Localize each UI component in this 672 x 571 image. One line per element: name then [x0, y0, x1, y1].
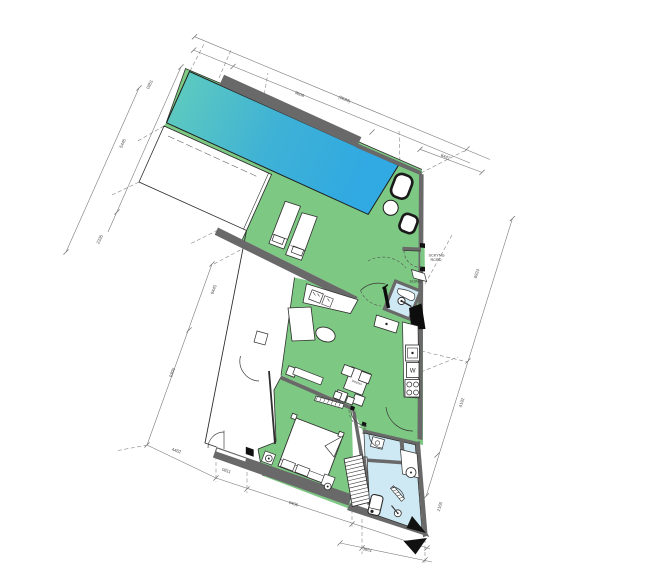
svg-text:SLDNG: SLDNG: [410, 280, 422, 284]
svg-text:SCKYNG: SCKYNG: [429, 254, 445, 258]
svg-text:W: W: [410, 369, 416, 375]
svg-text:RCRD: RCRD: [431, 258, 442, 262]
